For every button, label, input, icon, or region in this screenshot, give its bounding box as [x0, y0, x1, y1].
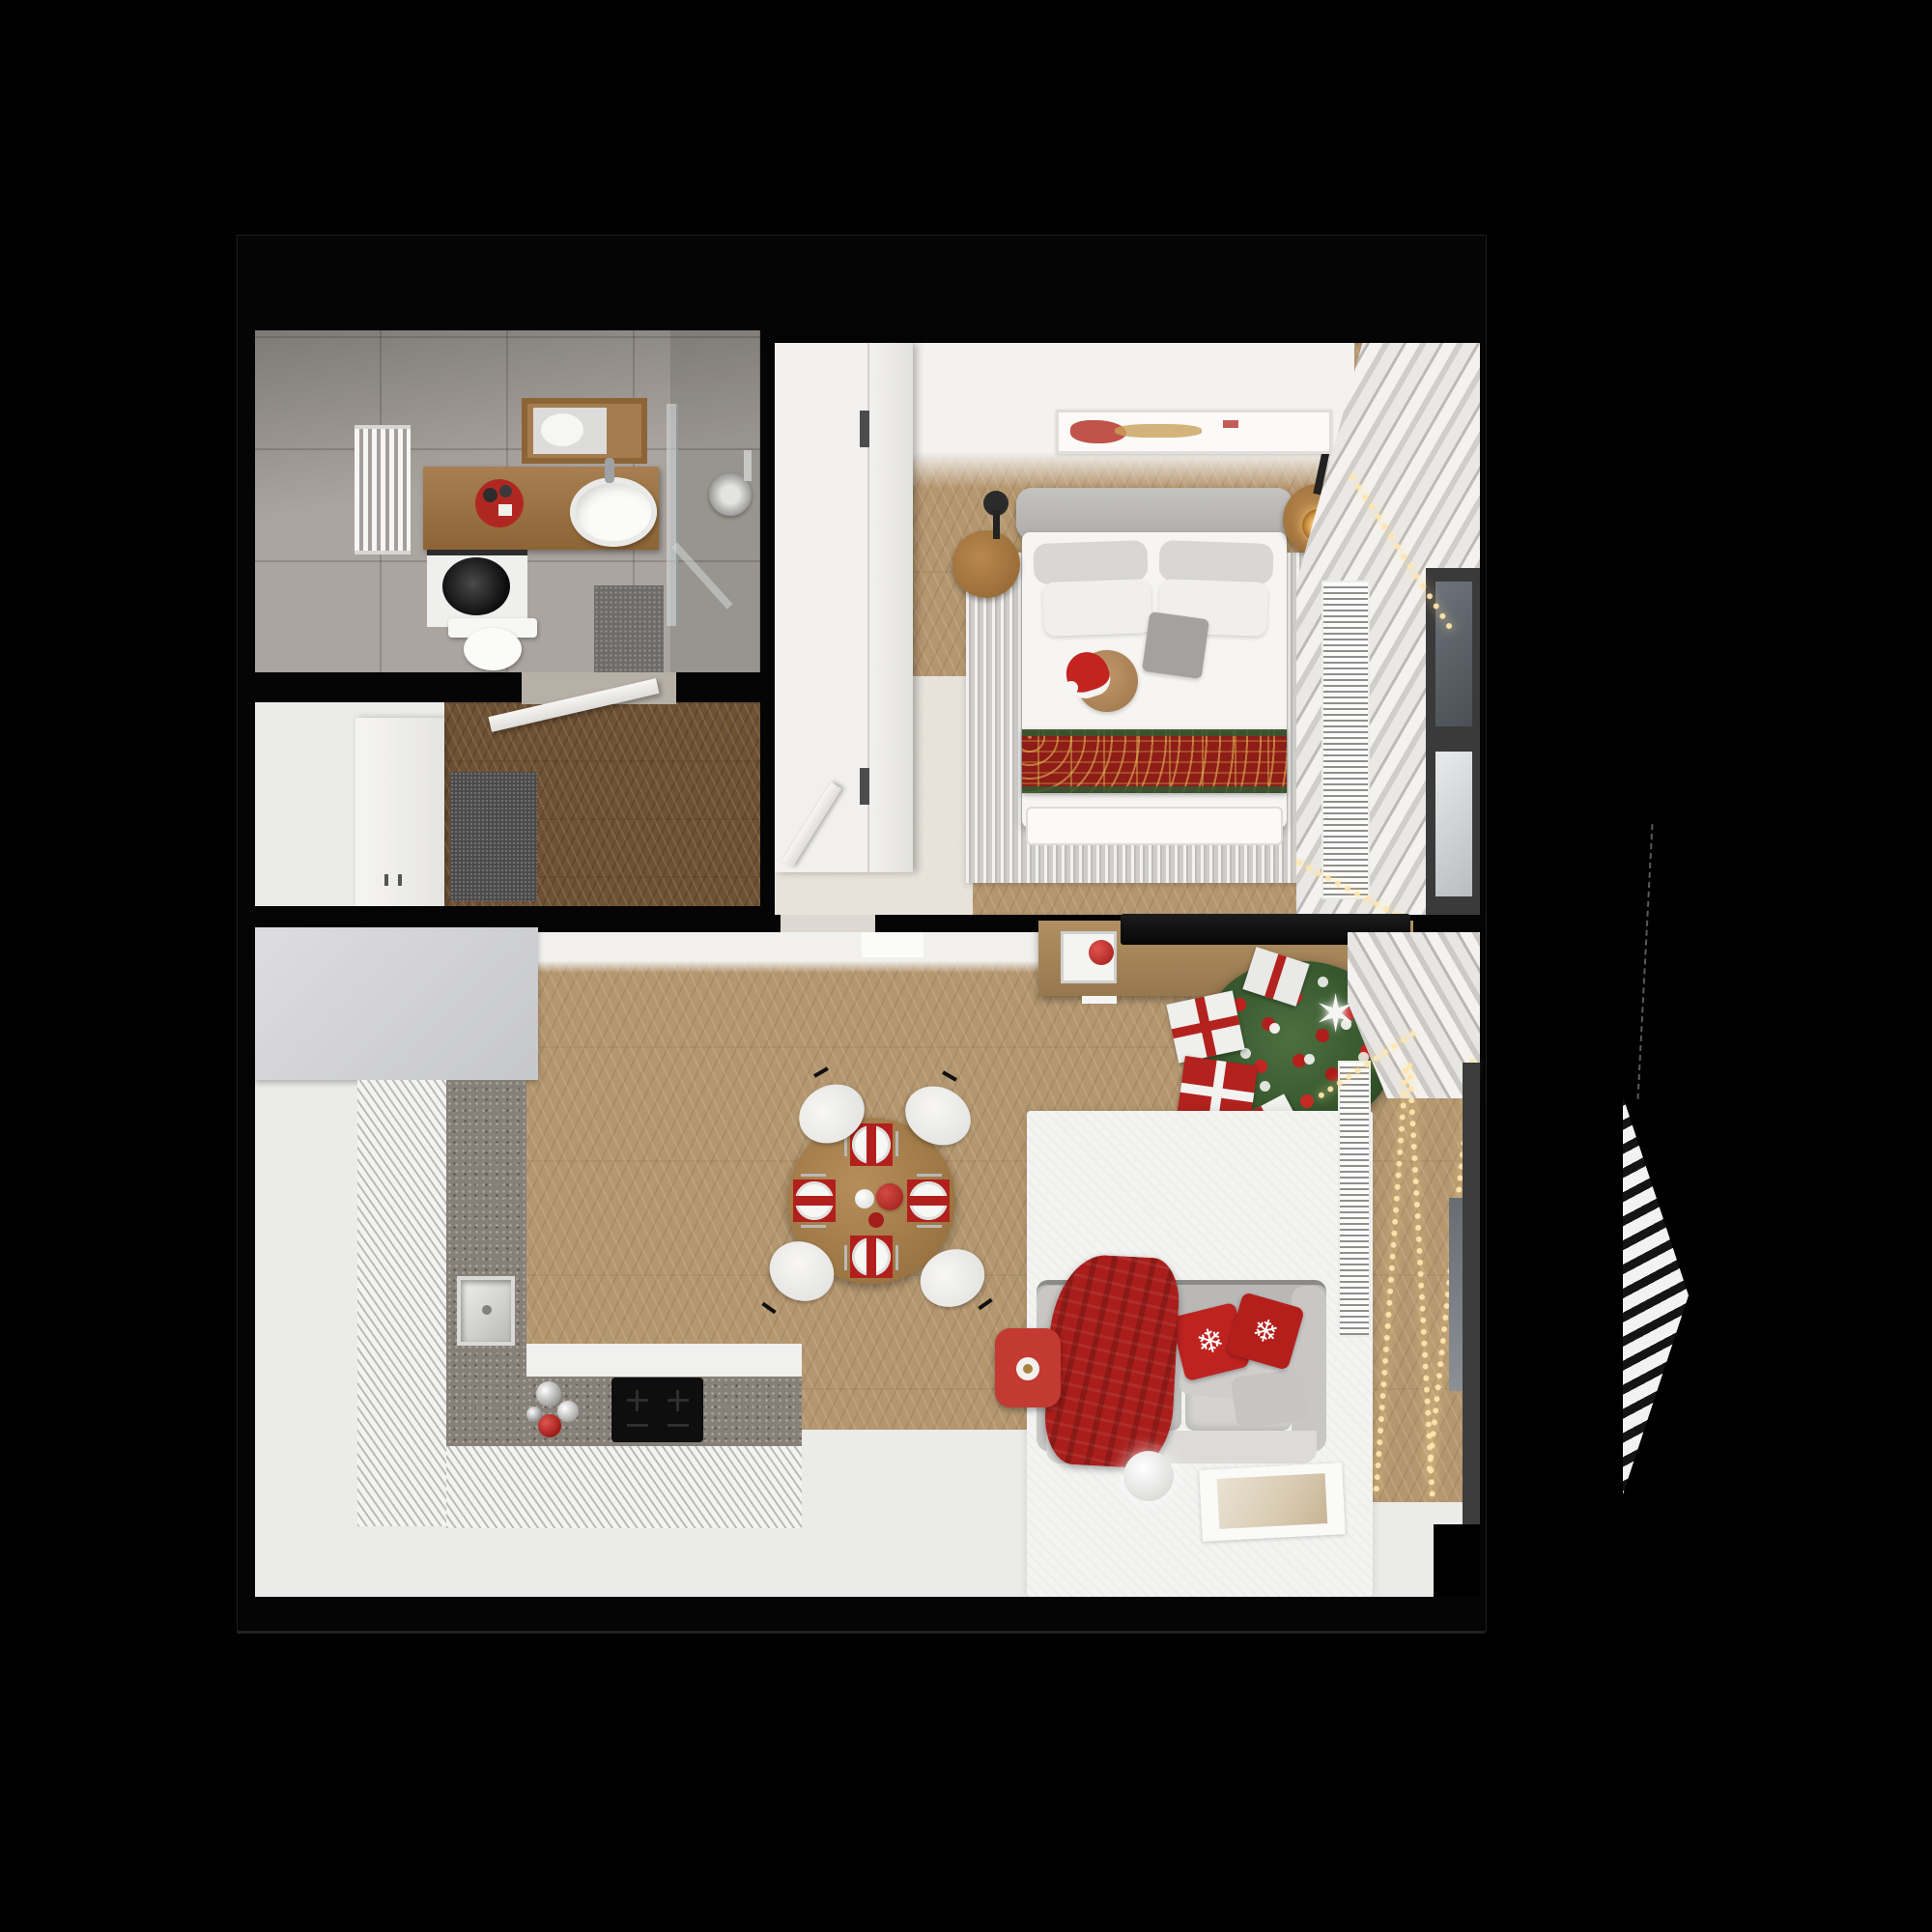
wall-art-red-dot	[1223, 420, 1238, 428]
plate-red-stripe	[867, 1237, 876, 1276]
bedroom-window-glass	[1435, 582, 1472, 726]
santa-hat-pom	[1065, 681, 1078, 695]
red-tray	[475, 479, 524, 527]
toiletry-bottle	[499, 485, 512, 497]
toilet-bowl	[464, 628, 522, 670]
plate	[909, 1181, 948, 1220]
christmas-bed-runner	[1022, 729, 1287, 793]
pillow-white	[1042, 579, 1152, 637]
poster-image	[1217, 1473, 1328, 1529]
guy-line-dashed	[1637, 824, 1654, 1099]
pendant-lamp-stem-left	[993, 510, 1000, 539]
kitchen-sink	[457, 1276, 515, 1346]
gray-tote-bag	[1142, 611, 1209, 679]
plate	[852, 1125, 891, 1164]
white-deco-ball	[855, 1189, 874, 1208]
towel-radiator	[355, 425, 411, 554]
wardrobe-handle	[398, 874, 402, 886]
corner-shadow	[1434, 1524, 1480, 1597]
bed	[1022, 488, 1287, 847]
washing-machine	[427, 550, 527, 627]
sideboard-open-drawer	[1061, 931, 1117, 983]
bed-foot-platform	[1026, 807, 1283, 845]
wardrobe-handle	[860, 411, 869, 447]
silver-bauble	[536, 1381, 561, 1406]
wall-art-gold-stroke	[1115, 424, 1202, 438]
red-bowl	[868, 1212, 884, 1228]
scene-canvas: ✶ ❄ ❄	[0, 0, 1932, 1932]
cutlery	[917, 1174, 942, 1177]
kitchen-cabinet-top-strip	[526, 1344, 802, 1377]
plate-red-stripe	[867, 1125, 876, 1164]
poster-on-rug	[1199, 1463, 1346, 1542]
hallway-wardrobe	[355, 718, 444, 906]
place-setting-right	[903, 1174, 950, 1228]
kitchen-cabinet-front-vertical	[357, 1080, 446, 1526]
living-window-glass	[1449, 1198, 1463, 1391]
bath-mat	[594, 585, 664, 672]
silver-bauble	[557, 1401, 579, 1422]
bathroom-sink	[570, 477, 657, 547]
sink-drain	[482, 1305, 492, 1315]
washer-door	[442, 557, 510, 615]
living-top-wall-strip	[526, 932, 1038, 973]
floor-ball-lamp	[1123, 1451, 1174, 1501]
louver-shade	[1623, 1096, 1689, 1494]
sink-faucet	[605, 458, 614, 483]
induction-cooktop	[611, 1378, 703, 1442]
bedroom-wardrobe	[775, 343, 913, 872]
toiletry-bottle	[483, 488, 497, 502]
bedroom-door-gap	[781, 915, 875, 934]
pillow-gray	[1033, 540, 1148, 584]
shower-arm	[744, 450, 752, 481]
wall-art	[1056, 410, 1332, 454]
wardrobe-handle	[384, 874, 388, 886]
gift-ribbon	[1264, 954, 1287, 1000]
mirror-glass	[533, 408, 607, 454]
red-throw-blanket	[1042, 1253, 1180, 1470]
cutlery	[844, 1245, 847, 1270]
doormat	[450, 772, 537, 901]
counter-ornaments	[525, 1378, 584, 1441]
cutlery	[801, 1225, 826, 1228]
cup-coffee	[1023, 1364, 1033, 1374]
burner-mark	[636, 1390, 639, 1411]
burner-mark	[676, 1390, 679, 1411]
plate-red-stripe	[795, 1196, 834, 1206]
plate-red-stripe	[909, 1196, 948, 1206]
living-window-frame	[1463, 1063, 1480, 1597]
place-setting-left	[793, 1174, 839, 1228]
wardrobe-handle	[860, 768, 869, 805]
cutlery	[801, 1174, 826, 1177]
burner-mark	[627, 1424, 648, 1427]
red-bauble	[538, 1414, 561, 1437]
cutlery	[895, 1131, 898, 1156]
red-side-table	[995, 1328, 1061, 1407]
pillow-gray	[1158, 540, 1273, 584]
place-setting-bottom	[844, 1232, 898, 1278]
cutlery	[917, 1225, 942, 1228]
plate	[795, 1181, 834, 1220]
burner-mark	[668, 1424, 689, 1427]
bedroom-window-glass	[1435, 752, 1472, 896]
mirror-shelf	[522, 398, 647, 464]
kitchen-cabinet-front-horizontal	[446, 1446, 802, 1528]
mirror-sink-reflection	[541, 413, 583, 446]
drawer-red-bauble	[1089, 940, 1114, 965]
cutlery	[895, 1245, 898, 1270]
nightstand-left	[952, 530, 1020, 598]
shower-glass	[667, 404, 678, 626]
plate	[852, 1237, 891, 1276]
bedroom-window-frame	[1426, 568, 1480, 915]
sideboard-leg	[1082, 996, 1117, 1004]
living-radiator-grille	[1338, 1061, 1371, 1337]
outer-wall-line-bottom	[237, 1632, 1485, 1634]
wall-niche	[862, 932, 923, 957]
red-teapot	[876, 1183, 903, 1210]
gray-cushion	[1231, 1368, 1309, 1430]
kitchen-tall-units	[255, 927, 538, 1080]
bedroom-radiator-grille	[1321, 581, 1370, 899]
toiletry-soap	[498, 504, 512, 516]
